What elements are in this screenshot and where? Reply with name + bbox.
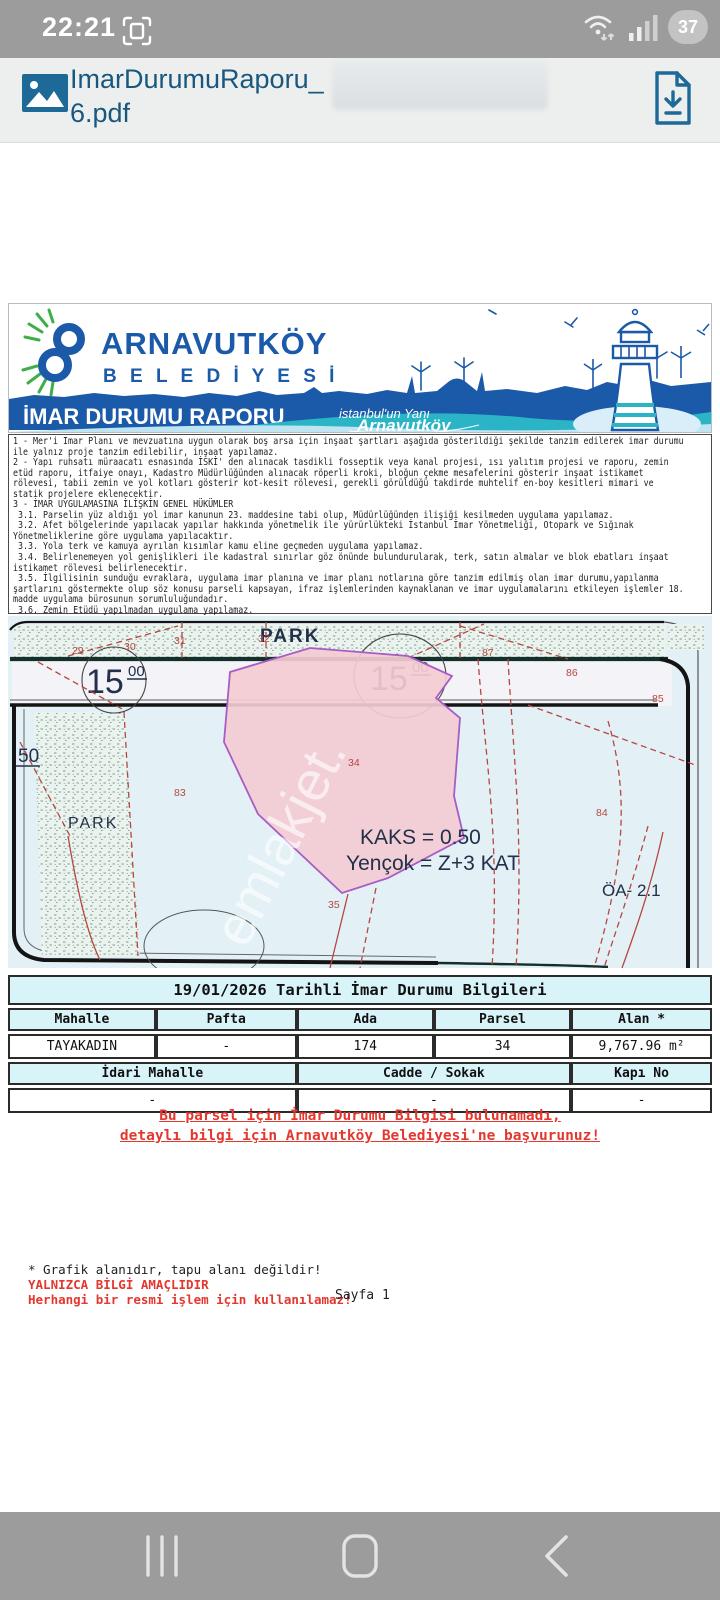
col-idari-mahalle: İdari Mahalle [8,1062,297,1085]
status-bar: 22:21 37 [0,0,720,58]
lighthouse [573,310,709,432]
svg-text:KAKS = 0.50: KAKS = 0.50 [360,826,481,849]
back-icon [539,1532,573,1580]
svg-text:32: 32 [258,633,270,645]
svg-text:86: 86 [566,667,578,679]
table-header-row-2: İdari Mahalle Cadde / Sokak Kapı No [8,1062,712,1085]
footer-note-info-only: YALNIZCA BİLGİ AMAÇLIDIR [28,1277,352,1292]
plan-notes-box: 1 - Mer'i İmar Planı ve mevzuatına uygun… [8,434,712,614]
download-pdf-button[interactable] [650,70,696,126]
plan-notes-text: 1 - Mer'i İmar Planı ve mevzuatına uygun… [13,437,713,616]
screenshot-icon [122,16,152,46]
svg-text:34: 34 [348,757,360,769]
svg-text:85: 85 [652,693,664,705]
col-alan: Alan * [571,1008,712,1031]
status-time: 22:21 [42,12,116,43]
wifi-icon [582,10,620,44]
zoning-map: 15 00 15 00 emlakjet. PARK [8,616,712,968]
col-cadde-sokak: Cadde / Sokak [297,1062,572,1085]
signal-icon [629,11,659,43]
col-parsel: Parsel [434,1008,571,1031]
home-icon [340,1532,380,1580]
warning-line2: detaylı bilgi için Arnavutköy Belediyesi… [120,1128,600,1144]
svg-text:30: 30 [124,641,136,653]
svg-text:15: 15 [86,663,124,701]
municipality-subtitle: B E L E D İ Y E S İ [103,366,338,387]
col-pafta: Pafta [156,1008,297,1031]
table-data-row: TAYAKADIN - 174 34 9,767.96 m² [8,1034,712,1059]
footer-note-not-official: Herhangi bir resmi işlem için kullanılam… [28,1292,352,1307]
svg-text:ÖA- 2.1: ÖA- 2.1 [602,881,661,900]
report-header-banner: ARNAVUTKÖY B E L E D İ Y E S İ İMAR DURU… [8,303,712,433]
val-mahalle: TAYAKADIN [8,1034,156,1059]
val-alan: 9,767.96 m² [571,1034,712,1059]
banner-graphic: ARNAVUTKÖY B E L E D İ Y E S İ İMAR DURU… [9,304,711,432]
svg-text:50: 50 [18,746,39,767]
android-nav-bar [0,1512,720,1600]
pdf-toolbar: ImarDurumuRaporu_ 6.pdf [0,58,720,143]
svg-text:35: 35 [328,899,340,911]
warning-line1: Bu parsel için İmar Durumu Bilgisi bulun… [159,1108,561,1124]
svg-text:87: 87 [482,647,494,659]
page-number: Sayfa 1 [335,1288,390,1303]
home-button[interactable] [300,1512,420,1600]
val-pafta: - [156,1034,297,1059]
footer-note-graphic-area: * Grafik alanıdır, tapu alanı değildir! [28,1262,352,1277]
col-ada: Ada [297,1008,434,1031]
svg-text:29: 29 [72,645,84,657]
page-footer: * Grafik alanıdır, tapu alanı değildir! … [28,1262,352,1307]
battery-indicator: 37 [668,10,708,44]
back-button[interactable] [496,1512,616,1600]
parcel-warning-text: Bu parsel için İmar Durumu Bilgisi bulun… [0,1106,720,1146]
table-title: 19/01/2026 Tarihli İmar Durumu Bilgileri [8,975,712,1005]
slogan-line2: Arnavutköy [356,416,452,432]
col-kapi-no: Kapı No [571,1062,712,1085]
municipality-logo [23,310,81,395]
municipality-name: ARNAVUTKÖY [101,326,327,361]
svg-text:Yençok = Z+3 KAT: Yençok = Z+3 KAT [346,852,520,875]
recents-button[interactable] [102,1512,222,1600]
pdf-filename-line2: 6.pdf [70,96,630,130]
zoning-info-table: 19/01/2026 Tarihli İmar Durumu Bilgileri… [8,972,712,1116]
svg-text:PARK: PARK [68,815,118,832]
recents-icon [140,1534,184,1578]
pdf-filename: ImarDurumuRaporu_ 6.pdf [70,62,630,130]
report-title: İMAR DURUMU RAPORU [23,404,285,429]
svg-text:83: 83 [174,787,186,799]
val-ada: 174 [297,1034,434,1059]
svg-text:00: 00 [128,663,145,680]
park-area-left [34,712,140,956]
svg-text:84: 84 [596,807,608,819]
image-file-icon [22,74,68,112]
battery-percent: 37 [678,17,698,38]
table-header-row: Mahalle Pafta Ada Parsel Alan * [8,1008,712,1031]
svg-text:31: 31 [174,635,186,647]
pdf-filename-line1: ImarDurumuRaporu_ [70,62,630,96]
col-mahalle: Mahalle [8,1008,156,1031]
val-parsel: 34 [434,1034,571,1059]
